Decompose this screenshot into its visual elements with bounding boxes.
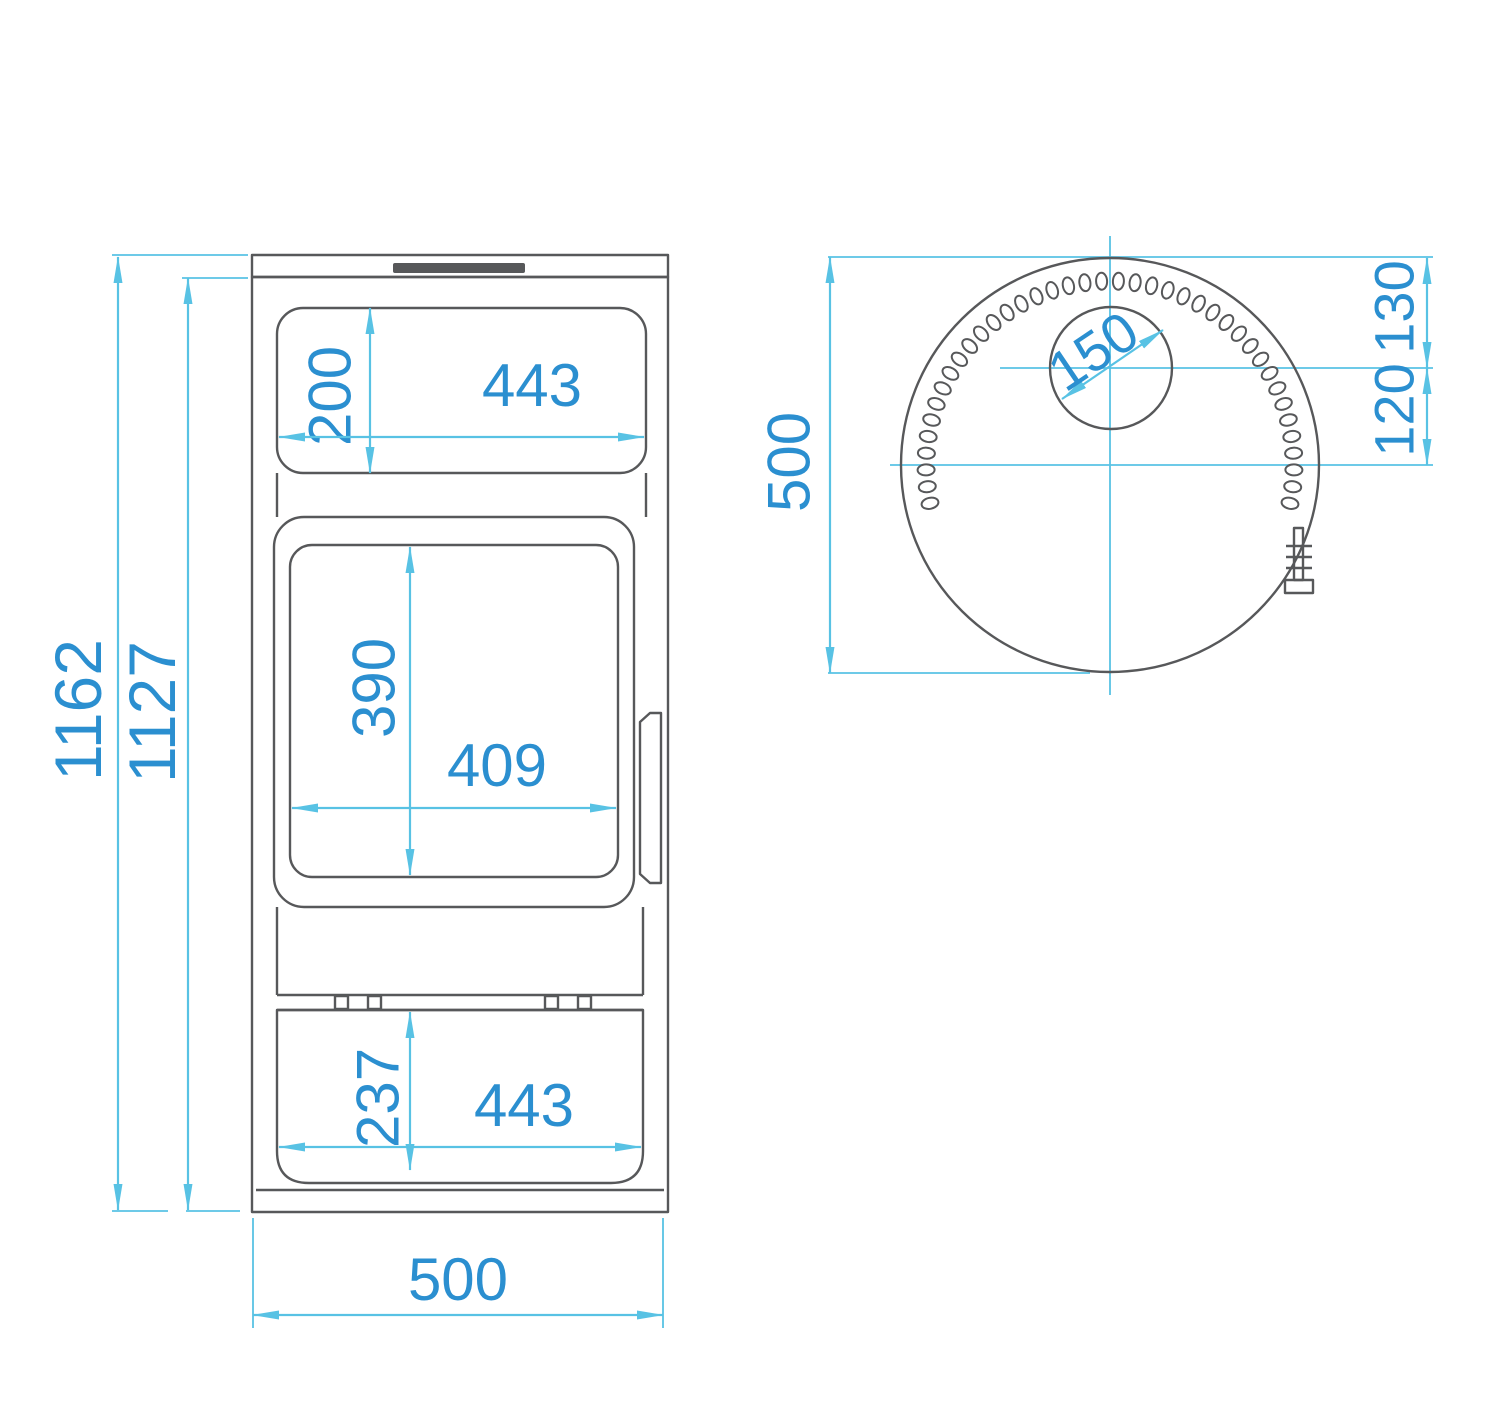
perforation-hole <box>1281 496 1300 510</box>
perforation-hole <box>1044 281 1060 301</box>
dim-label-door-window-height: 390 <box>341 638 408 738</box>
perforation-hole <box>1229 324 1249 344</box>
dim-label-top-window-height: 200 <box>297 346 364 446</box>
perforation-hole <box>933 380 953 397</box>
dim-label-door-window-width: 409 <box>447 732 547 799</box>
front-view: 1162 1127 200 443 390 409 237 443 500 <box>41 255 668 1328</box>
stove-technical-drawing: 1162 1127 200 443 390 409 237 443 500 <box>0 0 1500 1427</box>
perforation-hole <box>1190 294 1208 314</box>
perforation-hole <box>1012 294 1030 314</box>
dim-label-body-diameter: 500 <box>756 412 823 512</box>
dim-label-overall-height: 1162 <box>41 639 115 781</box>
perforation-hole <box>984 312 1003 332</box>
perforation-hole <box>919 430 937 443</box>
perforation-hole <box>922 413 941 428</box>
perforation-hole <box>921 496 940 510</box>
perforation-hole <box>1144 276 1159 295</box>
perforation-hole <box>1204 302 1223 322</box>
top-view: 500 150 130 120 <box>756 236 1434 695</box>
dim-label-overall-width: 500 <box>408 1246 508 1313</box>
perforation-hole <box>1285 447 1303 459</box>
door-outline <box>274 517 634 907</box>
perforation-hole <box>1285 464 1302 475</box>
perforation-hole <box>1078 274 1091 292</box>
divider-tab <box>368 996 381 1009</box>
perforation-hole <box>1283 430 1301 443</box>
perforation-hole <box>940 364 960 382</box>
perforation-hole <box>1274 396 1294 412</box>
perforation-hole <box>960 336 980 355</box>
latch-detail <box>1285 528 1313 593</box>
divider-tab <box>545 996 558 1009</box>
perforation-hole <box>1028 286 1045 306</box>
perforation-hole <box>1240 336 1260 355</box>
perforation-hole <box>1267 380 1287 397</box>
perforation-hole <box>998 302 1017 322</box>
dim-label-body-height: 1127 <box>115 641 189 783</box>
divider-tab <box>335 996 348 1009</box>
door-handle <box>640 713 661 883</box>
perforation-hole <box>971 324 991 344</box>
perforation-hole <box>1284 480 1302 493</box>
door-glass-outline <box>290 545 618 877</box>
perforation-hole <box>917 464 934 475</box>
perforation-hole <box>1175 286 1192 306</box>
perforation-hole <box>1250 350 1270 369</box>
divider-tab <box>578 996 591 1009</box>
lid-handle-slot <box>393 263 525 273</box>
dim-label-flue-edge-offset: 130 <box>1363 260 1426 353</box>
dim-label-drawer-width: 443 <box>474 1072 574 1139</box>
perforation-hole <box>1128 274 1141 292</box>
perforation-hole <box>1061 276 1076 295</box>
perforation-hole <box>918 480 936 493</box>
drawing-canvas: 1162 1127 200 443 390 409 237 443 500 <box>0 0 1500 1427</box>
perforation-hole <box>918 447 936 459</box>
dim-label-drawer-height: 237 <box>345 1048 412 1148</box>
dim-label-top-window-width: 443 <box>482 352 582 419</box>
perforation-hole <box>1160 281 1176 301</box>
perforation-hole <box>1279 413 1298 428</box>
perforation-hole <box>949 350 969 369</box>
ash-drawer-outline <box>277 1010 643 1183</box>
perforation-hole <box>1217 312 1236 332</box>
dim-label-flue-center-offset: 120 <box>1363 363 1426 456</box>
perforation-hole <box>1096 272 1108 289</box>
perforation-hole <box>927 396 947 412</box>
perforation-hole <box>1113 272 1125 289</box>
